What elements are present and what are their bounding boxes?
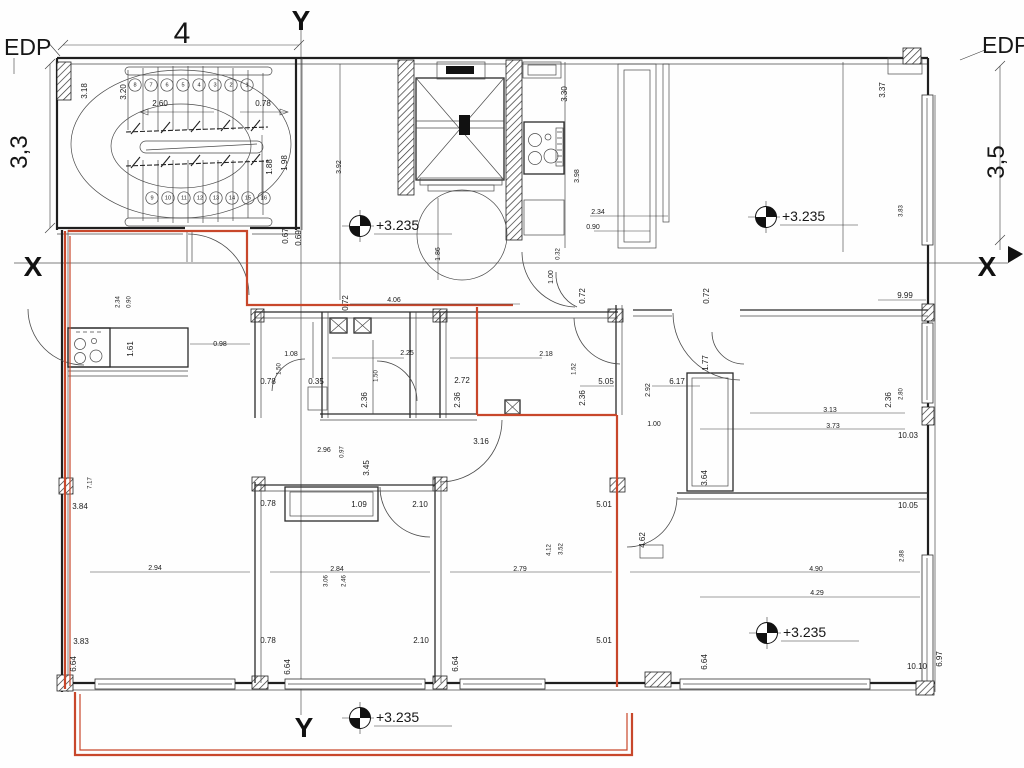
stair-step-number: 15 xyxy=(245,195,251,201)
dimension-label: 6.64 xyxy=(700,654,709,670)
dimension-label: 3.20 xyxy=(119,84,128,100)
dimension-label: 3.13 xyxy=(823,407,837,414)
stair-step-number: 2 xyxy=(229,82,232,88)
dimension-label: 2.60 xyxy=(152,99,168,108)
vent-shaft-icon xyxy=(354,318,371,333)
stair-step-number: 6 xyxy=(165,82,168,88)
elevation-value: +3.235 xyxy=(783,624,826,640)
dimension-label: 10.10 xyxy=(907,662,928,671)
elevation-marker-icon: +3.235 xyxy=(749,617,859,649)
dimension-label: 2.88 xyxy=(900,550,906,562)
dimension-label: 3.06 xyxy=(324,575,330,587)
dimension-label: 2.25 xyxy=(400,350,414,357)
dimension-label: 3.83 xyxy=(899,205,905,217)
section-arrow-icon xyxy=(1008,246,1023,263)
dimension-label: 6.97 xyxy=(935,651,944,667)
dimension-label: 2.92 xyxy=(645,383,652,397)
dimension-label: 1.88 xyxy=(265,159,274,175)
dimension-label: 7.17 xyxy=(88,477,94,489)
overall-height-left-label: 3,3 xyxy=(6,135,33,168)
dimension-label: 0.78 xyxy=(255,99,271,108)
dimension-label: 1.77 xyxy=(701,355,710,371)
dimension-label: 0.78 xyxy=(260,377,276,386)
dimension-label: 2.36 xyxy=(578,390,587,406)
stair-step-number: 14 xyxy=(229,195,235,201)
dimension-label: 5.01 xyxy=(596,500,612,509)
dimension-label: 0.78 xyxy=(260,636,276,645)
stair-step-number: 4 xyxy=(197,82,200,88)
dimension-label: 0.72 xyxy=(702,288,711,304)
dimension-label: 2.94 xyxy=(148,565,162,572)
dimension-label: 3.45 xyxy=(362,460,371,476)
stair-step-number: 7 xyxy=(149,82,152,88)
y-axis-label-top: Y xyxy=(292,5,311,36)
y-axis-label-bottom: Y xyxy=(295,712,314,743)
dimension-label: 0.98 xyxy=(213,341,227,348)
vent-shafts xyxy=(330,318,520,414)
dimension-label: 2.79 xyxy=(513,566,527,573)
elevation-value: +3.235 xyxy=(376,217,419,233)
turning-circle xyxy=(417,190,507,280)
elevator-shaft xyxy=(398,60,522,280)
dimension-label: 4.06 xyxy=(387,297,401,304)
dimension-label: 4.62 xyxy=(638,532,647,548)
dimension-label: 3.37 xyxy=(878,82,887,98)
elevation-marker-icon: +3.235 xyxy=(342,210,452,242)
dimension-label: 0.78 xyxy=(260,499,276,508)
elevation-markers: +3.235+3.235+3.235+3.235 xyxy=(342,201,859,734)
stairwell: 87654321910111213141516 xyxy=(71,66,291,226)
stove-icon-left xyxy=(68,328,110,367)
floor-plan-canvas: Y Y X X 4 EDP EDP 3,3 3,5 xyxy=(0,0,1024,768)
dimension-label: 6.64 xyxy=(283,659,292,675)
overall-height-right-label: 3,5 xyxy=(983,145,1010,178)
dimension-label: 3.30 xyxy=(560,86,569,102)
stair-step-number: 8 xyxy=(133,82,136,88)
elevation-marker-icon: +3.235 xyxy=(342,702,452,734)
stair-step-number: 3 xyxy=(213,82,216,88)
dimension-label: 1.61 xyxy=(126,341,135,357)
dimension-label: 10.03 xyxy=(898,431,919,440)
dimension-label: 1.00 xyxy=(548,270,555,284)
dimension-label: 1.52 xyxy=(572,363,578,375)
dimension-label: 3.16 xyxy=(473,437,489,446)
stair-step-number: 13 xyxy=(213,195,219,201)
dimension-label: 1.50 xyxy=(277,363,283,375)
dimension-label: 2.36 xyxy=(453,392,462,408)
stair-step-number: 11 xyxy=(181,195,187,201)
dimension-label: 3.18 xyxy=(80,83,89,99)
dimension-label: 1.08 xyxy=(284,351,298,358)
stair-step-number: 5 xyxy=(181,82,184,88)
stair-step-numbers: 87654321910111213141516 xyxy=(129,79,270,204)
dimension-label: 5.05 xyxy=(598,377,614,386)
edp-label-right: EDP xyxy=(982,32,1024,58)
dimension-label: 3.83 xyxy=(73,637,89,646)
dimension-label: 0.72 xyxy=(578,288,587,304)
edp-label-left: EDP xyxy=(4,34,51,60)
dimension-label: 2.10 xyxy=(413,636,429,645)
dimension-label: 2.36 xyxy=(884,392,893,408)
stair-step-number: 16 xyxy=(261,195,267,201)
dimension-label: 0.32 xyxy=(556,248,562,260)
stove-icon xyxy=(524,122,564,174)
dimension-label: 2.72 xyxy=(454,376,470,385)
dimension-label: 2.34 xyxy=(116,296,122,308)
dimension-label: 2.36 xyxy=(360,392,369,408)
dimension-label: 0.90 xyxy=(586,224,600,231)
overall-width-label: 4 xyxy=(174,17,191,50)
vent-shaft-icon xyxy=(330,318,347,333)
dimension-label: 3.52 xyxy=(559,543,565,555)
dimension-label: 2.18 xyxy=(539,351,553,358)
dimension-label: 1.00 xyxy=(647,421,661,428)
dimension-label: 2.80 xyxy=(899,388,905,400)
dimension-label: 3.73 xyxy=(826,423,840,430)
dimension-label: 4.29 xyxy=(810,590,824,597)
x-axis-label-right: X xyxy=(978,251,997,282)
dimension-label: 3.64 xyxy=(700,470,709,486)
dimension-label: 10.05 xyxy=(898,501,919,510)
stair-step-number: 10 xyxy=(165,195,171,201)
stair-step-number: 1 xyxy=(245,82,248,88)
door-arcs xyxy=(28,234,744,547)
floor-plan-page: Y Y X X 4 EDP EDP 3,3 3,5 xyxy=(0,0,1024,768)
kitchen-left xyxy=(68,328,250,376)
interior-walls xyxy=(187,232,928,683)
dimension-label: 6.64 xyxy=(451,656,460,672)
dimension-label: 4.12 xyxy=(547,544,553,556)
dimension-label: 4.90 xyxy=(809,566,823,573)
vent-shaft-icon xyxy=(505,400,520,414)
dimension-label: 0.90 xyxy=(127,296,133,308)
stair-step-number: 9 xyxy=(150,195,153,201)
dimension-label: 0.35 xyxy=(308,377,324,386)
dimension-label: 1.86 xyxy=(435,247,442,261)
dimension-label: 3.98 xyxy=(574,169,581,183)
hatched-columns xyxy=(57,48,934,695)
dimension-label: 3.92 xyxy=(336,160,343,174)
elevation-marker-icon: +3.235 xyxy=(748,201,858,233)
dimension-label: 0.69 xyxy=(294,230,303,246)
dimension-label: 5.01 xyxy=(596,636,612,645)
stair-step-number: 12 xyxy=(197,195,203,201)
dimension-label: 2.46 xyxy=(342,575,348,587)
elevation-value: +3.235 xyxy=(782,208,825,224)
dimension-label: 1.98 xyxy=(280,155,289,171)
dimension-label: 2.10 xyxy=(412,500,428,509)
dimension-label: 1.50 xyxy=(374,370,380,382)
dimension-label: 9.99 xyxy=(897,291,913,300)
dimension-label: 1.09 xyxy=(351,500,367,509)
dimension-label: 2.34 xyxy=(591,209,605,216)
dimension-label: 0.72 xyxy=(341,295,350,311)
dimension-label: 0.67 xyxy=(281,228,290,244)
dimension-label: 3.84 xyxy=(72,502,88,511)
dimension-label: 6.64 xyxy=(69,656,78,672)
dimension-label: 0.97 xyxy=(340,446,346,458)
dimension-label: 2.84 xyxy=(330,566,344,573)
dimension-label: 2.96 xyxy=(317,447,331,454)
dimension-label: 6.17 xyxy=(669,377,685,386)
elevation-value: +3.235 xyxy=(376,709,419,725)
x-axis-label-left: X xyxy=(24,251,43,282)
